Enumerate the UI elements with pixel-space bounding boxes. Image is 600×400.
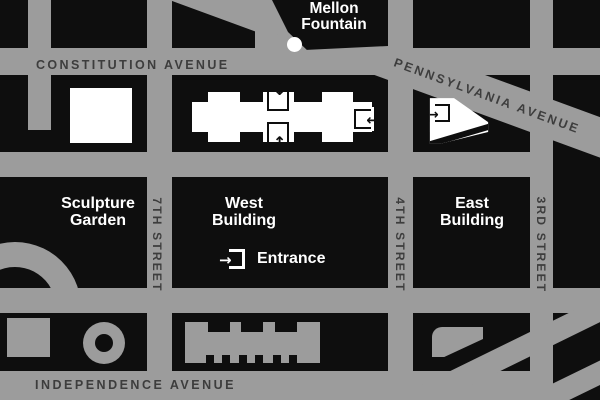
building-tick [239,355,247,363]
building-tick [222,355,230,363]
label-mellon-line1: Mellon [264,1,404,17]
building-tick [289,355,297,363]
west-building-pavilion-west [208,92,240,142]
building-long-south [185,322,320,363]
label-east-line2: Building [402,212,542,229]
building-notch [208,322,230,332]
east-building-slash [427,122,496,148]
label-sculpture-garden: Sculpture Garden [28,195,168,229]
curved-ramp-road [0,240,100,320]
west-building-south-entrance-icon: ↑ [267,122,289,143]
sculpture-garden-fountain [70,88,132,143]
building-ring-hole [95,334,113,352]
label-sculpture-line1: Sculpture [28,195,168,212]
road-madison-drive [0,152,553,177]
building-notch [275,322,297,332]
west-building-north-entrance-icon: ↓ [267,90,289,111]
arrow-left-icon: ← [366,113,379,128]
label-west-line1: West [174,195,314,212]
label-mellon-fountain: Mellon Fountain [264,1,404,32]
label-mellon-line2: Fountain [264,17,404,33]
label-west-line2: Building [174,212,314,229]
label-east-line1: East [402,195,542,212]
building-notch [241,322,263,332]
building-tick [273,355,281,363]
arrow-right-icon: → [427,108,439,122]
west-building-pavilion-east [322,92,353,142]
arrow-up-icon: ↑ [273,135,286,151]
mellon-fountain-dot [287,37,302,52]
label-independence-avenue: INDEPENDENCE AVENUE [35,378,236,392]
street-map: ↓ ↑ ← → CONSTITUTION AVENUE INDEPENDENCE… [0,0,600,400]
label-east-building: East Building [402,195,542,229]
label-constitution-avenue: CONSTITUTION AVENUE [36,58,230,72]
label-entrance-text: Entrance [257,250,347,267]
arrow-down-icon: ↓ [273,82,286,98]
entrance-arrow-right-icon: → [219,253,232,268]
label-sculpture-line2: Garden [28,212,168,229]
building-tick [255,355,263,363]
west-building-east-entrance-icon: ← [354,109,371,129]
building-ring [83,322,125,364]
building-tick [206,355,214,363]
label-west-building: West Building [174,195,314,229]
building-southwest-square [7,318,50,357]
east-building-entrance-icon: → [435,104,450,122]
label-entrance: Entrance [257,250,347,267]
entrance-icon: → [229,249,245,269]
building-trapezoid-south [432,327,483,357]
